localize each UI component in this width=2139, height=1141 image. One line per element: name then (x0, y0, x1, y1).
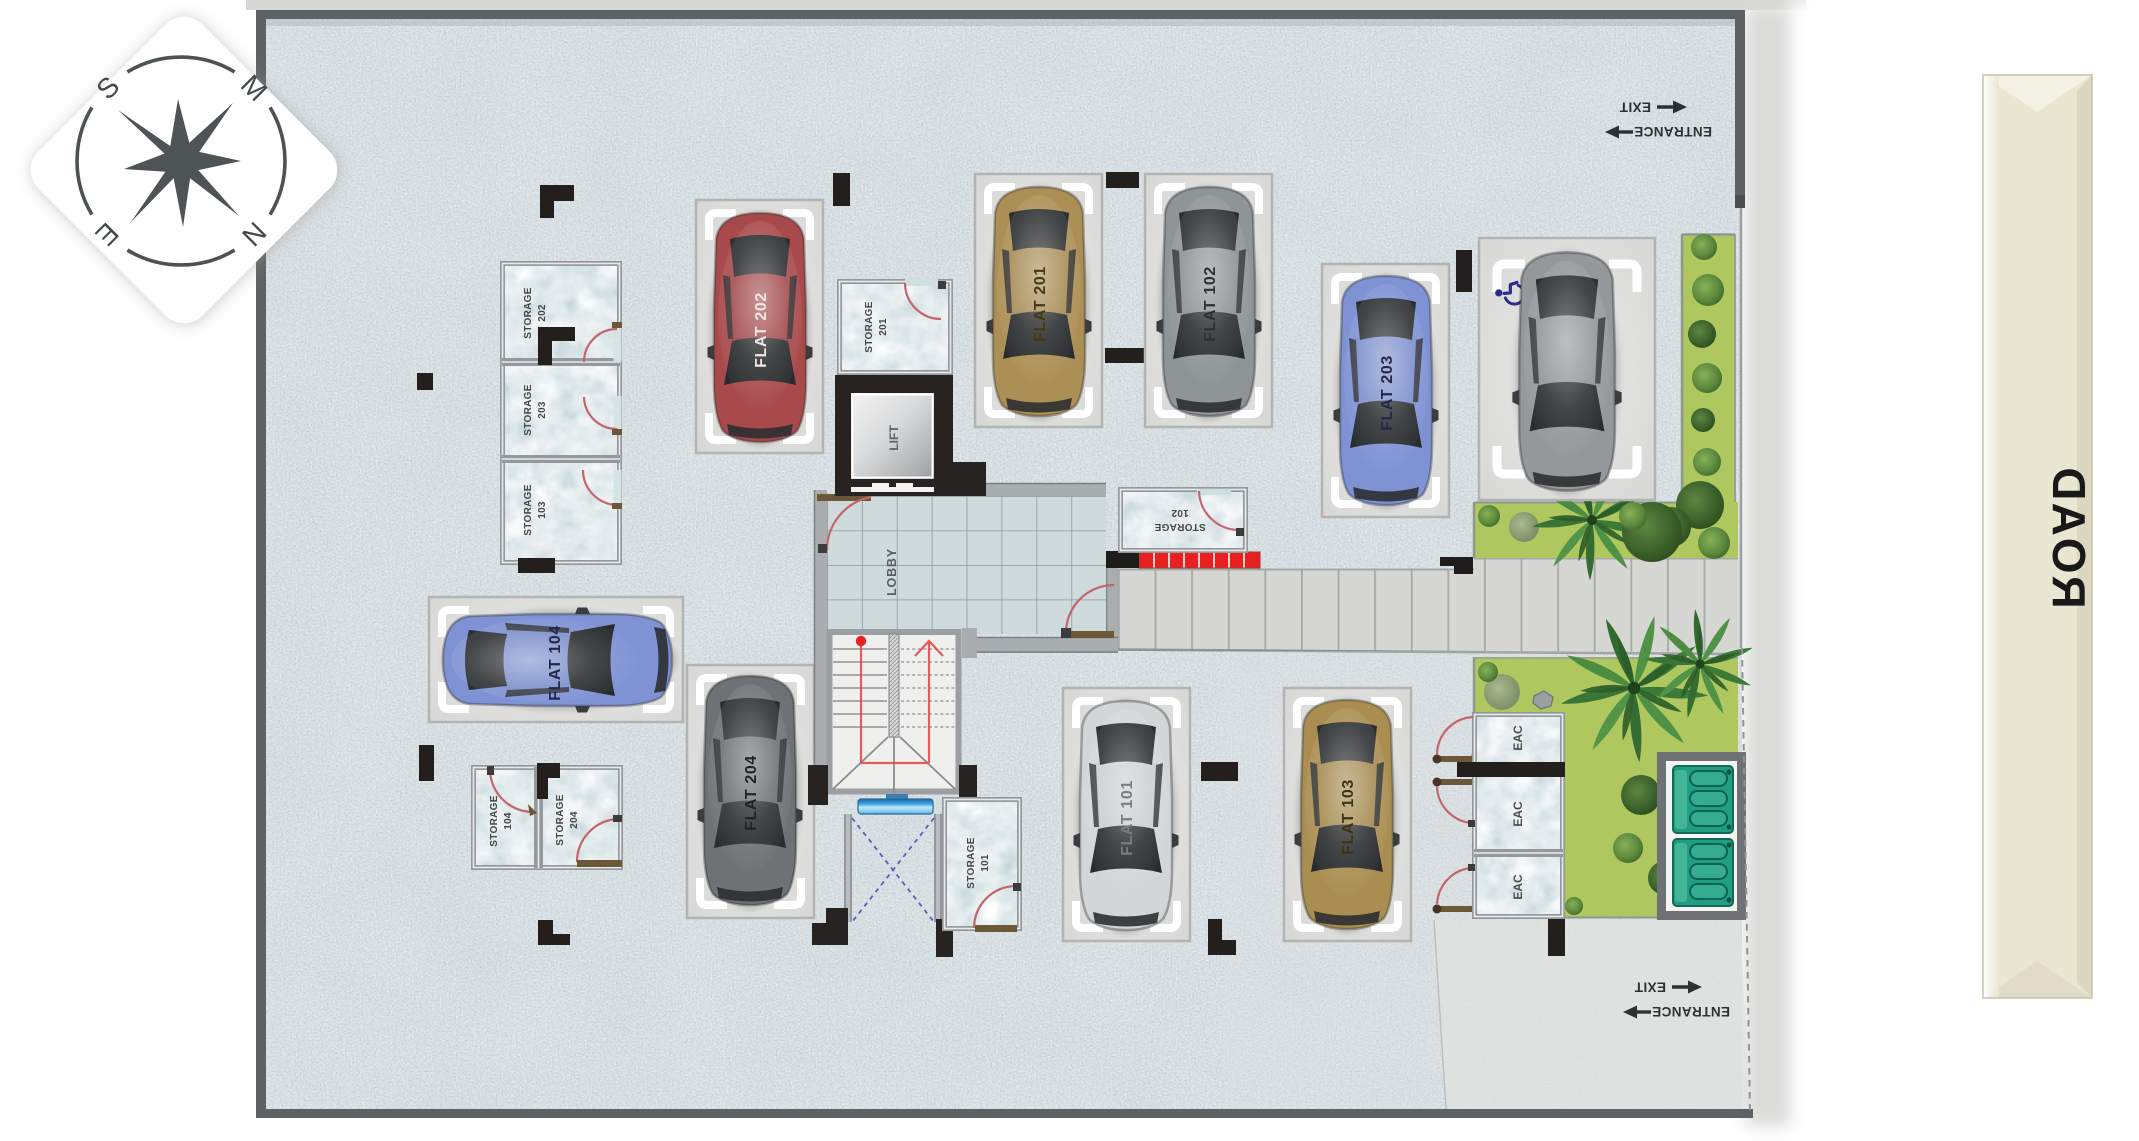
svg-text:FLAT 201: FLAT 201 (1032, 266, 1049, 342)
svg-text:FLAT 102: FLAT 102 (1202, 266, 1219, 342)
svg-text:104: 104 (503, 812, 514, 830)
svg-text:ROAD: ROAD (2043, 465, 2095, 608)
svg-text:STORAGE: STORAGE (864, 301, 875, 352)
svg-text:FLAT 203: FLAT 203 (1379, 355, 1396, 431)
svg-text:FLAT 104: FLAT 104 (547, 625, 564, 701)
svg-text:ENTRANCE: ENTRANCE (1634, 124, 1712, 139)
svg-text:STORAGE: STORAGE (523, 484, 534, 535)
svg-text:103: 103 (537, 501, 548, 519)
svg-text:STORAGE: STORAGE (523, 287, 534, 338)
svg-text:101: 101 (980, 854, 991, 872)
svg-text:LOBBY: LOBBY (885, 548, 899, 596)
svg-text:STORAGE: STORAGE (555, 794, 566, 845)
svg-text:STORAGE: STORAGE (489, 795, 500, 846)
svg-text:203: 203 (537, 401, 548, 419)
svg-text:FLAT 103: FLAT 103 (1340, 779, 1357, 855)
svg-text:FLAT 101: FLAT 101 (1119, 780, 1136, 856)
svg-text:EXIT: EXIT (1634, 980, 1666, 995)
svg-text:LIFT: LIFT (887, 425, 901, 451)
svg-text:201: 201 (878, 318, 889, 336)
svg-text:STORAGE: STORAGE (1154, 521, 1205, 532)
svg-text:EAC: EAC (1511, 725, 1525, 751)
svg-text:STORAGE: STORAGE (523, 384, 534, 435)
svg-text:STORAGE: STORAGE (966, 837, 977, 888)
svg-text:EXIT: EXIT (1619, 100, 1651, 115)
svg-text:FLAT 204: FLAT 204 (743, 755, 760, 831)
svg-text:FLAT 202: FLAT 202 (753, 292, 770, 368)
svg-text:202: 202 (537, 304, 548, 322)
svg-text:102: 102 (1171, 507, 1189, 518)
svg-text:EAC: EAC (1511, 874, 1525, 900)
svg-text:204: 204 (569, 811, 580, 829)
svg-text:EAC: EAC (1511, 801, 1525, 827)
svg-text:ENTRANCE: ENTRANCE (1652, 1004, 1730, 1019)
